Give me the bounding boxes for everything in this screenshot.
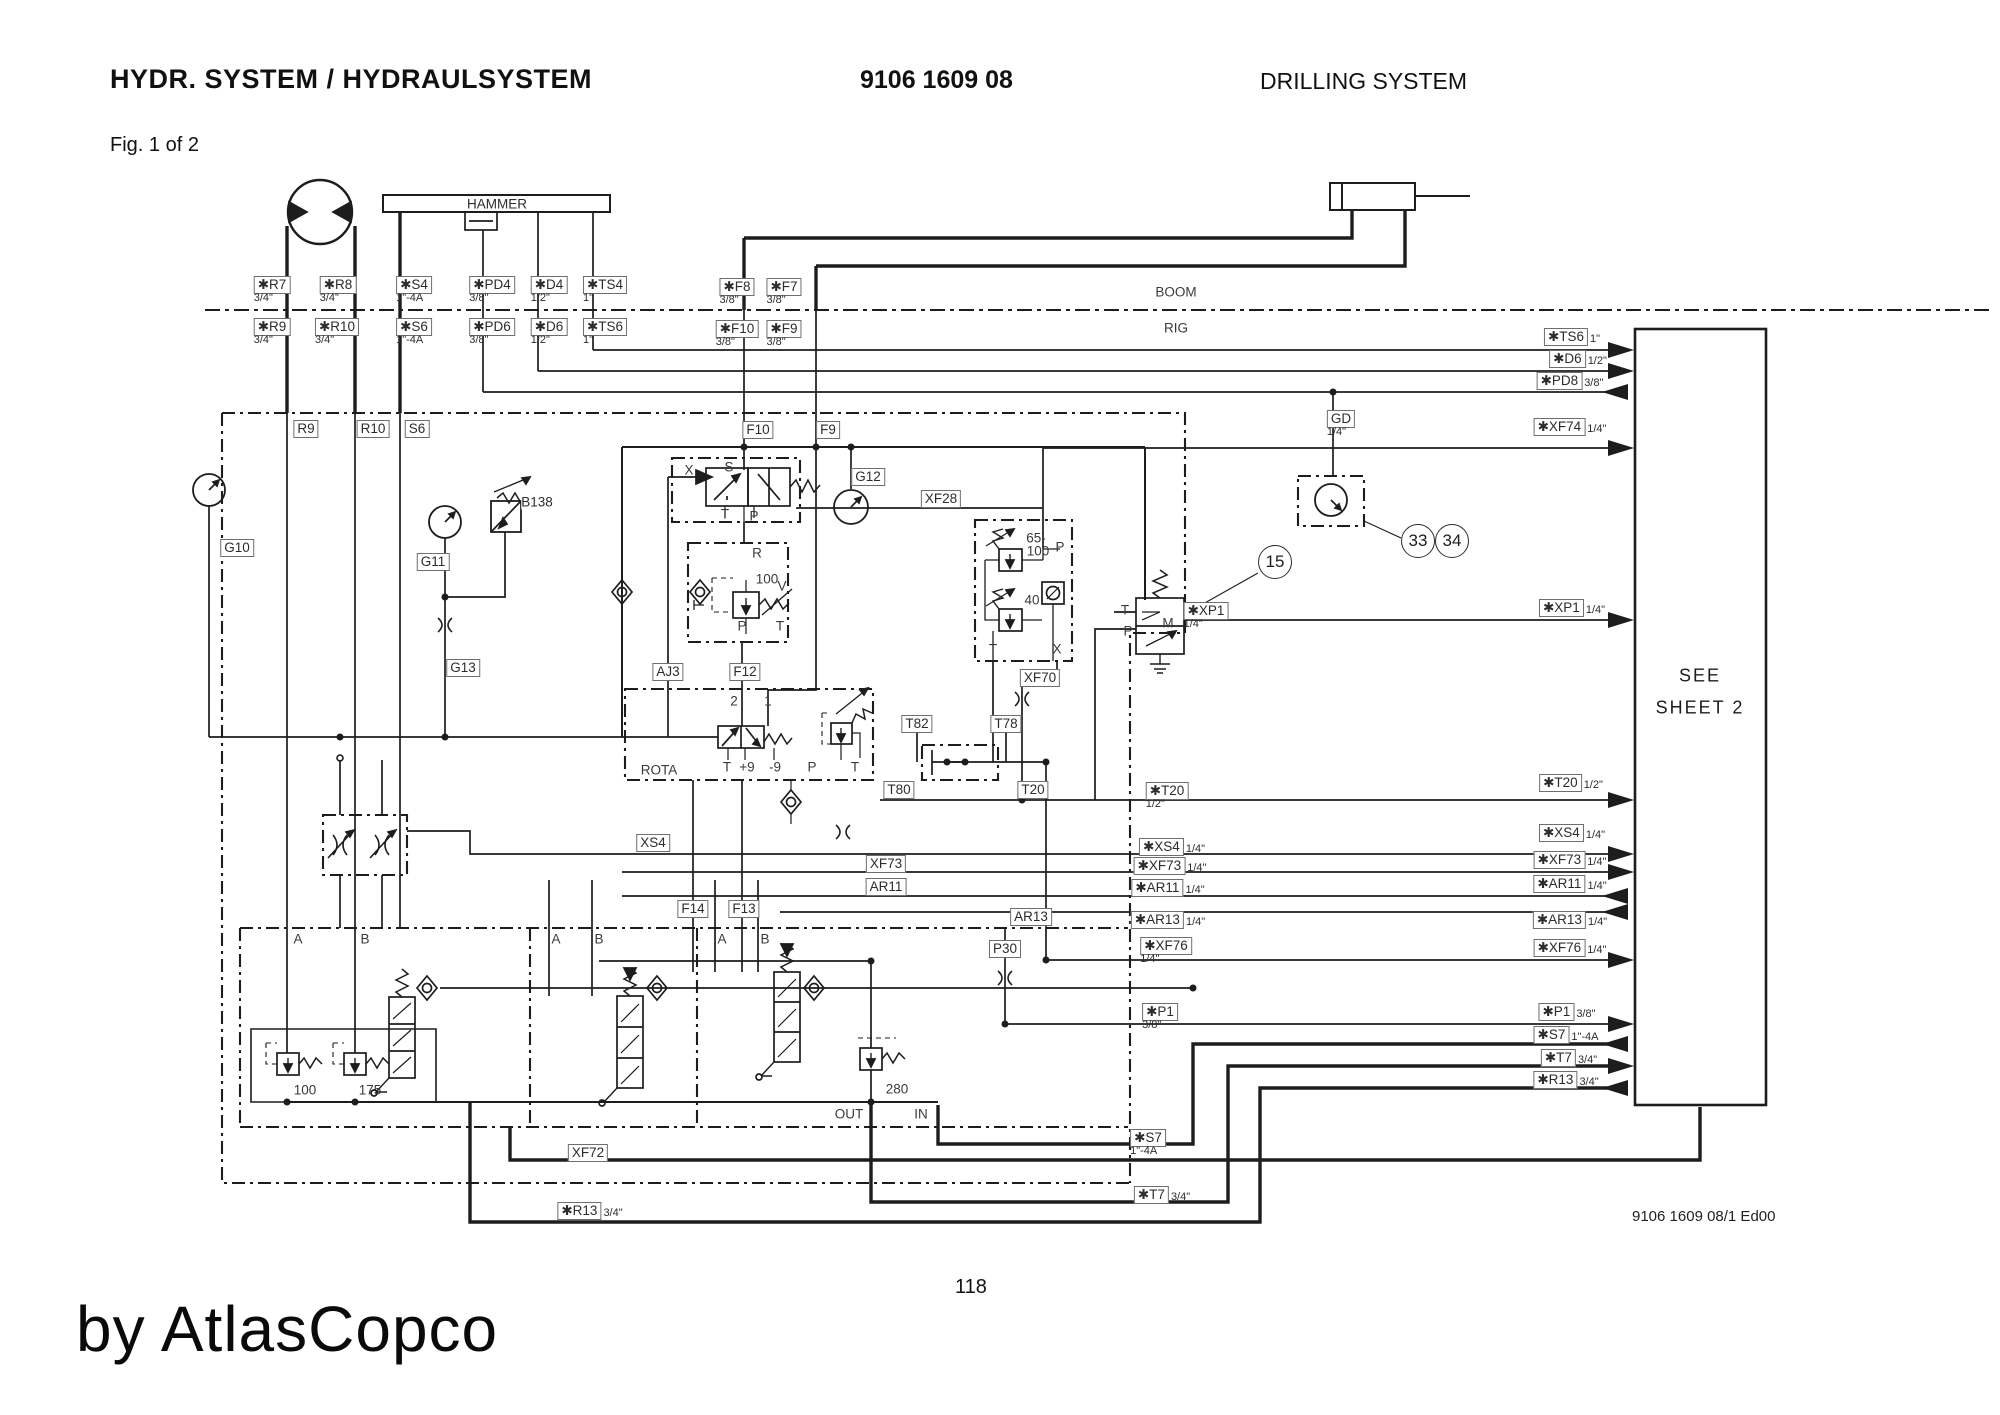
port-out: OUT — [835, 1107, 864, 1122]
label-size: 1" — [583, 334, 593, 346]
label-d4: ✱D41/2" — [531, 276, 568, 294]
label-r13: ✱R133/4" — [1533, 1071, 1598, 1089]
label-ar13: AR13 — [1010, 908, 1052, 926]
label-ar13: ✱AR131/4" — [1533, 911, 1607, 929]
label-text: ✱XF73 — [1134, 857, 1186, 875]
label-text: AR11 — [866, 878, 907, 896]
label-size: 3/4" — [315, 334, 334, 346]
throttle-pair — [328, 755, 396, 858]
label-text: ✱R13 — [557, 1202, 601, 1220]
port-t: T — [776, 619, 784, 634]
label-text: F13 — [728, 900, 759, 918]
label-size: 1/2" — [1584, 779, 1603, 791]
label-size: 1/4" — [1186, 843, 1205, 855]
port-p: P — [807, 760, 816, 775]
label-text: F14 — [677, 900, 708, 918]
label-ar13: ✱AR131/4" — [1131, 911, 1205, 929]
junction-dots — [284, 389, 1337, 1106]
label-text: ✱AR13 — [1131, 911, 1184, 929]
label-ts6: ✱TS61" — [583, 318, 627, 336]
label-xf70: XF70 — [1020, 669, 1060, 687]
label-s6: S6 — [405, 420, 430, 438]
label-text: ✱T20 — [1539, 774, 1582, 792]
label-size: 3/4" — [1578, 1054, 1597, 1066]
port-100: 100 — [1027, 544, 1050, 559]
label-text: G13 — [446, 659, 480, 677]
label-text: ✱R13 — [1533, 1071, 1577, 1089]
port-t: T — [721, 507, 729, 522]
label-size: 3/4" — [603, 1207, 622, 1219]
label-xf72: XF72 — [568, 1144, 608, 1162]
label-size: 1/4" — [1140, 953, 1159, 965]
port-b: B — [760, 932, 769, 947]
valve-rota — [718, 726, 792, 760]
label-text: G10 — [220, 539, 254, 557]
label-f8: ✱F83/8" — [719, 278, 754, 296]
valve-relief-rota — [822, 688, 872, 760]
label-text: ✱AR11 — [1131, 879, 1183, 897]
label-xf73: ✱XF731/4" — [1134, 857, 1207, 875]
label-text: ✱P1 — [1538, 1003, 1574, 1021]
label-p30: P30 — [989, 940, 1021, 958]
boom-cylinder — [1330, 183, 1470, 210]
label-size: 1"-4A — [396, 292, 423, 304]
label-size: 1/4" — [1588, 916, 1607, 928]
port-rota: ROTA — [641, 763, 678, 778]
label-xf76: ✱XF761/4" — [1534, 939, 1607, 957]
label-size: 1"-4A — [1130, 1145, 1157, 1157]
label-xf73: XF73 — [866, 855, 906, 873]
label-r8: ✱R83/4" — [320, 276, 357, 294]
port-t: T — [723, 760, 731, 775]
label-text: ✱XP1 — [1539, 599, 1584, 617]
label-text: R10 — [357, 420, 390, 438]
label-f9: ✱F93/8" — [766, 320, 801, 338]
label-g12: G12 — [851, 468, 885, 486]
gauge-gd — [1315, 484, 1401, 538]
label-t20: ✱T201/2" — [1539, 774, 1603, 792]
label-text: T20 — [1017, 781, 1048, 799]
label-size: 3/4" — [1579, 1076, 1598, 1088]
label-r7: ✱R73/4" — [254, 276, 291, 294]
port-100: 100 — [294, 1083, 317, 1098]
label-size: 3/8" — [1576, 1008, 1595, 1020]
label-f12: F12 — [729, 663, 760, 681]
label-size: 1/4" — [1186, 916, 1205, 928]
port-t: T — [1121, 603, 1129, 618]
label-size: 3/8" — [1584, 377, 1603, 389]
label-size: 3/8" — [716, 336, 735, 348]
label-size: 1/4" — [1327, 426, 1346, 438]
label-text: T80 — [883, 781, 914, 799]
port-175: 175 — [359, 1083, 382, 1098]
hydraulic-motor — [288, 180, 352, 244]
port-p: P — [1123, 624, 1132, 639]
label-pd8: ✱PD83/8" — [1537, 372, 1604, 390]
label-text: ✱XF73 — [1534, 851, 1586, 869]
port-b: B — [594, 932, 603, 947]
label-text: ✱T7 — [1541, 1049, 1576, 1067]
label-xs4: XS4 — [636, 834, 670, 852]
label-r13: ✱R133/4" — [557, 1202, 622, 1220]
port-9: +9 — [739, 760, 754, 775]
valve-bank-section1 — [266, 969, 415, 1096]
label-size: 1/2" — [1146, 798, 1165, 810]
label-size: 1/4" — [1586, 604, 1605, 616]
label-t20: T20 — [1017, 781, 1048, 799]
label-size: 3/4" — [254, 334, 273, 346]
label-gd: GD1/4" — [1327, 410, 1355, 428]
label-pd6: ✱PD63/8" — [469, 318, 515, 336]
port-t: T — [989, 642, 997, 657]
label-ar11: ✱AR111/4" — [1131, 879, 1204, 897]
label-text: G11 — [417, 553, 450, 571]
label-size: 1/2" — [1588, 355, 1607, 367]
label-f9: F9 — [816, 421, 840, 439]
valve-relief-280 — [858, 1038, 905, 1070]
label-r10: R10 — [357, 420, 390, 438]
label-g11: G11 — [417, 553, 450, 571]
label-size: 1"-4A — [1571, 1031, 1598, 1043]
port-p: P — [737, 619, 746, 634]
label-f7: ✱F73/8" — [766, 278, 801, 296]
gauge-g10 — [193, 474, 225, 506]
label-t82: T82 — [901, 715, 932, 733]
label-text: T78 — [990, 715, 1021, 733]
label-size: 1/4" — [1187, 862, 1206, 874]
label-b138: B138 — [521, 495, 553, 510]
port-x: X — [684, 463, 693, 478]
port-r: R — [752, 546, 762, 561]
label-size: 1/4" — [1184, 618, 1203, 630]
label-text: P30 — [989, 940, 1021, 958]
label-t7: ✱T73/4" — [1541, 1049, 1597, 1067]
label-size: 3/4" — [254, 292, 273, 304]
label-text: S6 — [405, 420, 430, 438]
label-s6: ✱S61"-4A — [396, 318, 432, 336]
gauge-g12 — [834, 490, 868, 524]
label-size: 3/8" — [469, 334, 488, 346]
port-a: A — [293, 932, 302, 947]
label-text: AR13 — [1010, 908, 1052, 926]
port-9: -9 — [769, 760, 781, 775]
label-text: F10 — [742, 421, 773, 439]
label-text: ✱XS4 — [1139, 838, 1184, 856]
label-text: F12 — [729, 663, 760, 681]
label-text: ✱XF76 — [1534, 939, 1586, 957]
label-d6: ✱D61/2" — [1549, 350, 1607, 368]
label-p1: ✱P13/8" — [1142, 1003, 1178, 1021]
label-size: 1/4" — [1587, 880, 1606, 892]
label-r9: ✱R93/4" — [254, 318, 291, 336]
label-s7: ✱S71"-4A — [1534, 1026, 1599, 1044]
label-f10: F10 — [742, 421, 773, 439]
label-text: F9 — [816, 421, 840, 439]
label-text: XF73 — [866, 855, 906, 873]
label-size: 1" — [1590, 333, 1600, 345]
label-ts6: ✱TS61" — [1544, 328, 1600, 346]
label-s7: ✱S71"-4A — [1130, 1129, 1166, 1147]
label-xf76: ✱XF761/4" — [1140, 937, 1192, 955]
label-xp1: ✱XP11/4" — [1539, 599, 1605, 617]
port-t: T — [851, 760, 859, 775]
label-xs4: ✱XS41/4" — [1539, 824, 1605, 842]
label-text: ✱T7 — [1134, 1186, 1169, 1204]
label-t80: T80 — [883, 781, 914, 799]
label-size: 1/4" — [1587, 856, 1606, 868]
label-size: 3/8" — [719, 294, 738, 306]
label-size: 1/4" — [1587, 423, 1606, 435]
label-d6: ✱D61/2" — [531, 318, 568, 336]
port-100: 100 — [756, 572, 779, 587]
label-size: 3/4" — [1171, 1191, 1190, 1203]
label-text: ✱AR11 — [1533, 875, 1585, 893]
port-m: M — [1162, 616, 1173, 631]
callout-15-leader — [1203, 573, 1258, 604]
label-t7: ✱T73/4" — [1134, 1186, 1190, 1204]
port-x: X — [1052, 642, 1061, 657]
label-s4: ✱S41"-4A — [396, 276, 432, 294]
label-text: ✱D6 — [1549, 350, 1586, 368]
label-xp1: ✱XP11/4" — [1184, 602, 1229, 620]
valve-bank-section3 — [756, 944, 800, 1080]
label-f14: F14 — [677, 900, 708, 918]
schematic-page: HYDR. SYSTEM / HYDRAULSYSTEM 9106 1609 0… — [0, 0, 2000, 1415]
label-aj3: AJ3 — [652, 663, 683, 681]
label-text: XS4 — [636, 834, 670, 852]
label-g13: G13 — [446, 659, 480, 677]
connector-arrows — [1602, 342, 1634, 1096]
label-size: 3/8" — [1142, 1019, 1161, 1031]
callout-15: 15 — [1258, 545, 1292, 579]
label-text: G12 — [851, 468, 885, 486]
label-xf74: ✱XF741/4" — [1534, 418, 1607, 436]
port-2: 2 — [730, 694, 738, 709]
label-text: T82 — [901, 715, 932, 733]
port-p: P — [749, 509, 758, 524]
label-size: 3/8" — [469, 292, 488, 304]
label-xf28: XF28 — [921, 490, 961, 508]
label-text: AJ3 — [652, 663, 683, 681]
label-ar11: ✱AR111/4" — [1533, 875, 1606, 893]
port-s: S — [724, 460, 733, 475]
callout-34: 34 — [1435, 524, 1469, 558]
label-text: ✱TS6 — [1544, 328, 1588, 346]
label-t78: T78 — [990, 715, 1021, 733]
label-t20: ✱T201/2" — [1146, 782, 1189, 800]
label-size: 3/8" — [766, 294, 785, 306]
see-sheet-line1: SEE — [1679, 666, 1721, 687]
port-rig: RIG — [1164, 321, 1188, 336]
label-r9: R9 — [293, 420, 318, 438]
label-ar11: AR11 — [866, 878, 907, 896]
label-pd4: ✱PD43/8" — [469, 276, 515, 294]
label-text: ✱XS4 — [1539, 824, 1584, 842]
label-ts4: ✱TS41" — [583, 276, 627, 294]
port-in: IN — [914, 1107, 928, 1122]
label-f10: ✱F103/8" — [716, 320, 759, 338]
port-a: A — [551, 932, 560, 947]
label-text: XF72 — [568, 1144, 608, 1162]
label-text: XF28 — [921, 490, 961, 508]
valve-xp1 — [1136, 570, 1184, 673]
label-r10: ✱R103/4" — [315, 318, 359, 336]
label-size: 1"-4A — [396, 334, 423, 346]
label-size: 3/4" — [320, 292, 339, 304]
label-size: 1/4" — [1587, 944, 1606, 956]
port-40: 40 — [1024, 593, 1039, 608]
port-a: A — [717, 932, 726, 947]
label-text: R9 — [293, 420, 318, 438]
callout-33: 33 — [1401, 524, 1435, 558]
label-g10: G10 — [220, 539, 254, 557]
see-sheet-line2: SHEET 2 — [1656, 698, 1745, 719]
port-boom: BOOM — [1155, 285, 1196, 300]
label-xf73: ✱XF731/4" — [1534, 851, 1607, 869]
gauge-g11 — [429, 506, 461, 538]
hammer-label: HAMMER — [467, 197, 527, 212]
label-f13: F13 — [728, 900, 759, 918]
label-text: ✱AR13 — [1533, 911, 1586, 929]
label-text: ✱S7 — [1534, 1026, 1570, 1044]
label-text: XF70 — [1020, 669, 1060, 687]
port-p: P — [1055, 540, 1064, 555]
label-size: 1/4" — [1185, 884, 1204, 896]
label-size: 1/2" — [531, 334, 550, 346]
port-b: B — [360, 932, 369, 947]
label-text: B138 — [521, 495, 553, 510]
label-size: 1" — [583, 292, 593, 304]
label-size: 1/4" — [1586, 829, 1605, 841]
label-xs4: ✱XS41/4" — [1139, 838, 1205, 856]
port-280: 280 — [886, 1082, 909, 1097]
label-text: ✱XF74 — [1534, 418, 1586, 436]
label-size: 1/2" — [531, 292, 550, 304]
label-text: ✱PD8 — [1537, 372, 1583, 390]
label-p1: ✱P13/8" — [1538, 1003, 1595, 1021]
port-1: 1 — [764, 694, 772, 709]
port-v: V — [777, 579, 786, 594]
label-size: 3/8" — [766, 336, 785, 348]
